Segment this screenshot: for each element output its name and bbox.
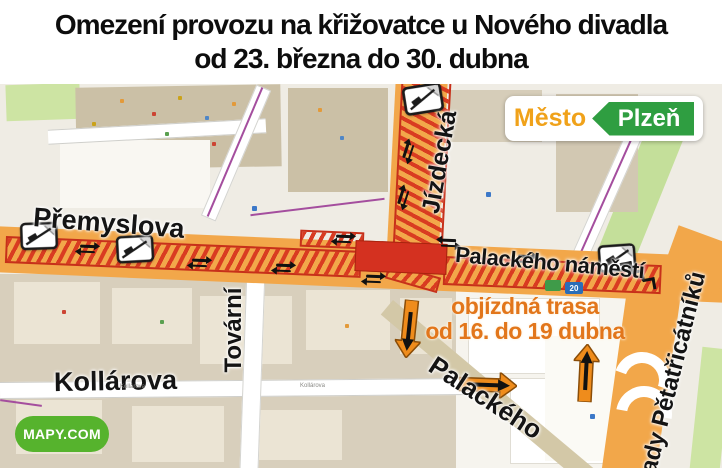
poi-dot-icon [62,310,66,314]
poi-dot-icon [152,112,156,116]
city-logo: Město Plzeň [505,96,703,141]
street-label-tovarni: Tovární [220,288,248,373]
page-title-line2: od 23. března do 30. dubna [194,43,527,75]
park-area [690,347,722,468]
route-shield-20-label: 20 [570,284,579,293]
tram-line [250,198,384,216]
map: 20 Přemyslova Jízdecká Palackého náměstí… [0,84,722,468]
transit-stop-icon [590,414,595,419]
two-way-arrow-icon [276,261,297,276]
page-title-line1: Omezení provozu na křižovatce u Nového d… [55,9,667,41]
poi-dot-icon [178,96,182,100]
poi-dot-icon [92,122,96,126]
poi-dot-icon [340,136,344,140]
building-block [306,290,390,350]
city-logo-prefix: Město [514,104,586,133]
mapy-logo: MAPY.COM [15,416,109,452]
detour-note: objízdná trasa od 16. do 19 dubna [422,294,628,345]
route-shield-green [545,280,561,291]
building-block [132,406,224,462]
poi-dot-icon [165,132,169,136]
micro-street-label: Kollárova [300,383,325,389]
city-logo-name: Plzeň [618,105,681,133]
two-way-arrow-icon [192,256,213,271]
transit-stop-icon [252,206,257,211]
building-block [258,410,342,460]
poi-dot-icon [232,102,236,106]
page-title: Omezení provozu na křižovatce u Nového d… [0,0,722,84]
poi-dot-icon [318,108,322,112]
two-way-arrow-icon [336,232,357,247]
street-label-kollarova: Kollárova [54,365,178,398]
detour-arrow-up-icon [572,343,601,402]
announcement-graphic: Omezení provozu na křižovatce u Nového d… [0,0,722,468]
poi-dot-icon [345,324,349,328]
building-block [14,282,100,344]
poi-dot-icon [160,320,164,324]
poi-dot-icon [205,116,209,120]
full-closure-red-block [354,240,447,275]
park-area [5,84,80,121]
detour-note-line2: od 16. do 19 dubna [422,319,628,344]
transit-stop-icon [486,192,491,197]
plaza-area [60,140,210,208]
building-block [112,288,192,344]
poi-dot-icon [212,142,216,146]
micro-street-label: Kollárova [120,384,145,390]
poi-dot-icon [120,99,124,103]
two-way-arrow-icon [366,272,387,287]
two-way-arrow-icon [80,242,101,257]
building-block [288,88,388,192]
detour-note-line1: objízdná trasa [422,294,628,319]
plzen-arrow-sign: Plzeň [592,102,694,136]
